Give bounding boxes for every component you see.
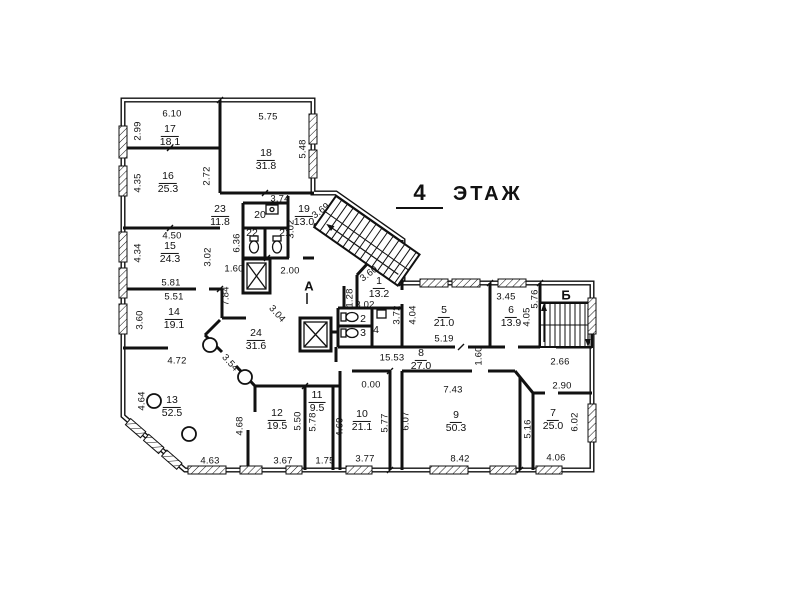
- dim-label: 4.68: [235, 416, 246, 435]
- dim-label: 4.69: [335, 417, 346, 436]
- dim-label: 4.04: [408, 305, 419, 324]
- dim-label: 2.72: [202, 166, 213, 185]
- dim-label: 5.48: [298, 139, 309, 158]
- room-label-3: 3: [360, 327, 366, 339]
- dim-label: 15.53: [380, 353, 405, 364]
- room-label-8: 827.0: [411, 348, 431, 372]
- dim-label: 6.02: [570, 412, 581, 431]
- plan-title: 4 ЭТАЖ: [396, 180, 523, 209]
- room-label-6: 613.9: [501, 305, 521, 329]
- dim-label: 5.75: [258, 112, 277, 123]
- room-label-14: 1419.1: [164, 307, 184, 331]
- dim-label: 6.07: [401, 411, 412, 430]
- floor-word: ЭТАЖ: [453, 183, 523, 206]
- dim-label: 5.76: [530, 289, 541, 308]
- dim-label: 5.77: [380, 413, 391, 432]
- room-label-24: 2431.6: [246, 328, 266, 352]
- staircase-b-icon: [540, 303, 592, 347]
- floor-number: 4: [396, 180, 443, 209]
- dim-label: 0.00: [361, 380, 380, 391]
- dim-label: 2.66: [550, 357, 569, 368]
- room-label-2: 2: [360, 313, 366, 325]
- room-label-16: 1625.3: [158, 171, 178, 195]
- dim-label: 4.72: [167, 356, 186, 367]
- stair-a-label: А: [304, 279, 313, 294]
- room-label-12: 1219.5: [267, 408, 287, 432]
- dim-label: 4.05: [522, 307, 533, 326]
- dim-label: 5.19: [434, 334, 453, 345]
- dim-label: 7.43: [443, 385, 462, 396]
- room-label-18: 1831.8: [256, 148, 276, 172]
- room-label-9: 950.3: [446, 410, 466, 434]
- dim-label: 1.60: [474, 346, 485, 365]
- room-label-17: 1718.1: [160, 124, 180, 148]
- elevator-shaft-icon: [300, 318, 331, 351]
- dim-label: 7.84: [221, 286, 232, 305]
- dim-label: 4.64: [137, 391, 148, 410]
- room-label-23: 2311.8: [210, 204, 230, 228]
- dim-label: 1.28: [345, 288, 356, 307]
- dim-label: 4.50: [162, 231, 181, 242]
- dim-label: 4.34: [133, 243, 144, 262]
- dim-label: 3.60: [135, 310, 146, 329]
- floor-plan-drawing: [0, 0, 809, 614]
- dim-label: 2.99: [133, 121, 144, 140]
- dim-label: 4.63: [200, 456, 219, 467]
- dim-label: 6.10: [162, 109, 181, 120]
- dim-label: 3.67: [273, 456, 292, 467]
- dim-label: 3.72: [392, 305, 403, 324]
- dim-label: 5.51: [164, 292, 183, 303]
- room-label-13: 1352.5: [162, 395, 182, 419]
- dim-label: 3.45: [496, 292, 515, 303]
- room-label-5: 521.0: [434, 305, 454, 329]
- stair-b-label: Б: [561, 288, 570, 303]
- dim-label: 2.00: [280, 266, 299, 277]
- room-label-10: 1021.1: [352, 409, 372, 433]
- dim-label: 5.78: [308, 412, 319, 431]
- dim-label: 1.75: [315, 456, 334, 467]
- room-label-22: 22: [246, 227, 258, 239]
- dim-label: 2.90: [552, 381, 571, 392]
- dim-label: 3.02: [286, 219, 297, 238]
- room-label-20: 20: [254, 209, 266, 221]
- dim-label: 5.81: [161, 278, 180, 289]
- dim-label: 6.36: [232, 233, 243, 252]
- dim-label: 3.74: [270, 194, 289, 205]
- dim-label: 3.02: [355, 300, 374, 311]
- dim-label: 4.06: [546, 453, 565, 464]
- dim-label: 8.42: [450, 454, 469, 465]
- room-label-19: 1913.0: [294, 204, 314, 228]
- dim-label: 5.16: [523, 419, 534, 438]
- room-label-11: 119.5: [309, 390, 326, 414]
- dim-label: 3.77: [355, 454, 374, 465]
- dim-label: 5.50: [293, 411, 304, 430]
- room-label-15: 1524.3: [160, 241, 180, 265]
- dim-label: 4.35: [133, 173, 144, 192]
- room-label-1: 113.2: [369, 276, 389, 300]
- room-label-4: 4: [373, 324, 379, 336]
- dim-label: 3.02: [203, 247, 214, 266]
- elevator-shaft-icon: [243, 259, 270, 293]
- dim-label: 1.60: [224, 264, 243, 275]
- room-label-7: 725.0: [543, 408, 563, 432]
- floor-plan: 4 ЭТАЖ 1718.1 1831.8 1625.3 1524.3 1419.…: [0, 0, 809, 614]
